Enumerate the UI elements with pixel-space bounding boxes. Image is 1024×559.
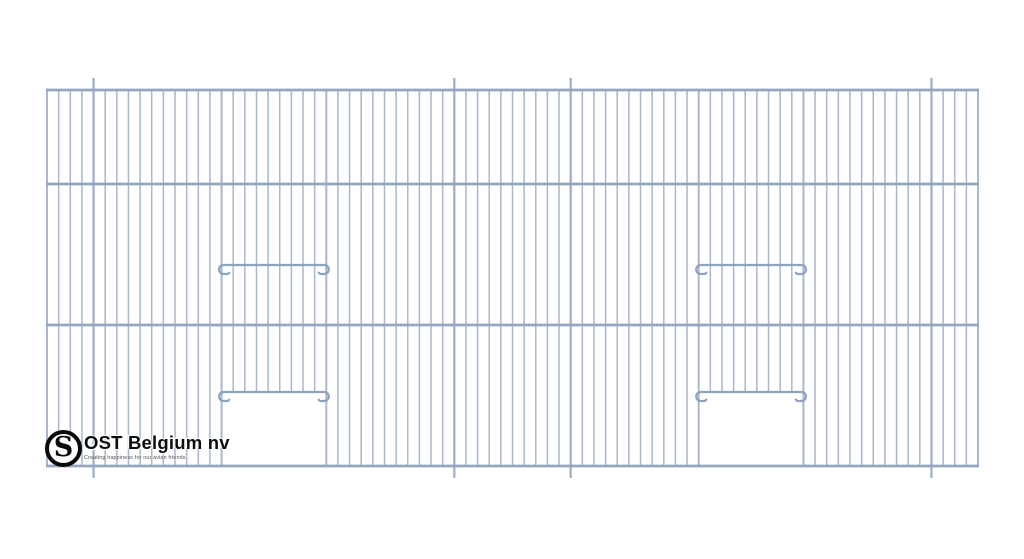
perch-rod (219, 265, 329, 274)
door-opening (699, 392, 804, 466)
door-opening (222, 392, 327, 466)
door-rod (696, 392, 806, 401)
company-name: OST Belgium nv (84, 432, 230, 453)
door-rod (219, 392, 329, 401)
ost-logo-icon: S (45, 430, 82, 467)
company-tagline: Creating happiness for our avian friends (84, 455, 230, 461)
perch-rod (696, 265, 806, 274)
logo-monogram: S (54, 432, 74, 463)
drawing-canvas: S OST Belgium nv Creating happiness for … (0, 0, 1024, 559)
brand-logo: S OST Belgium nv Creating happiness for … (45, 430, 230, 467)
logo-text-block: OST Belgium nv Creating happiness for ou… (84, 430, 230, 461)
cage-front-drawing (0, 0, 1024, 559)
vertical-wires (47, 78, 978, 478)
